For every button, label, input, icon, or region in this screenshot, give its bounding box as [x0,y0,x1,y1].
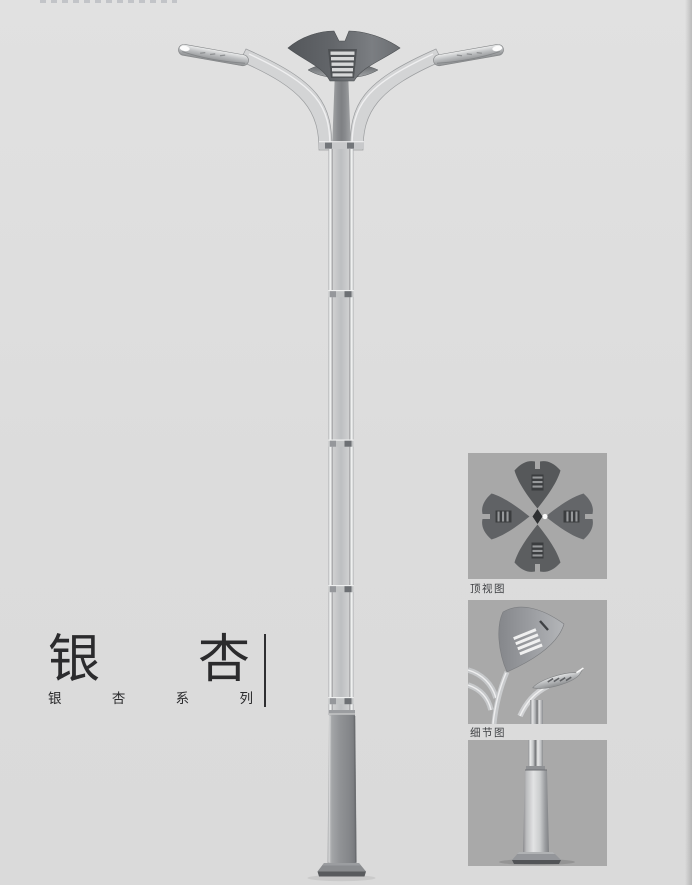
thumbnail-detail-view [468,600,607,724]
thumbnail-label-top-view: 顶视图 [470,582,607,596]
series-subtitle: 银 杏 系 列 [48,691,253,706]
series-title-char: 杏 [198,633,250,687]
lamp-base-image [468,740,607,866]
series-subtitle-char: 列 [239,691,253,706]
thumbnail-base-view [468,740,607,866]
lamp-head [433,44,505,67]
series-subtitle-char: 杏 [112,691,126,706]
title-divider [264,634,266,707]
series-title: 银 杏 [48,633,250,687]
lamp-pole [329,149,354,715]
thumbnail-top-view [468,453,607,579]
page-edge-shading [685,0,692,885]
lamp-base [328,710,357,863]
thumbnail-label-detail-view: 细节图 [470,726,607,740]
base-flange [308,863,376,881]
series-subtitle-char: 银 [48,691,62,706]
pole-joint-top [319,141,364,149]
lamp-detail-image [468,600,607,724]
catalog-page: 银 杏 银 杏 系 列 [0,0,692,885]
lamp-upper-column [332,70,351,150]
series-title-char: 银 [48,633,100,687]
crown-vents [328,49,357,78]
series-subtitle-char: 系 [176,691,190,706]
lamp-top-view-image [468,453,607,579]
